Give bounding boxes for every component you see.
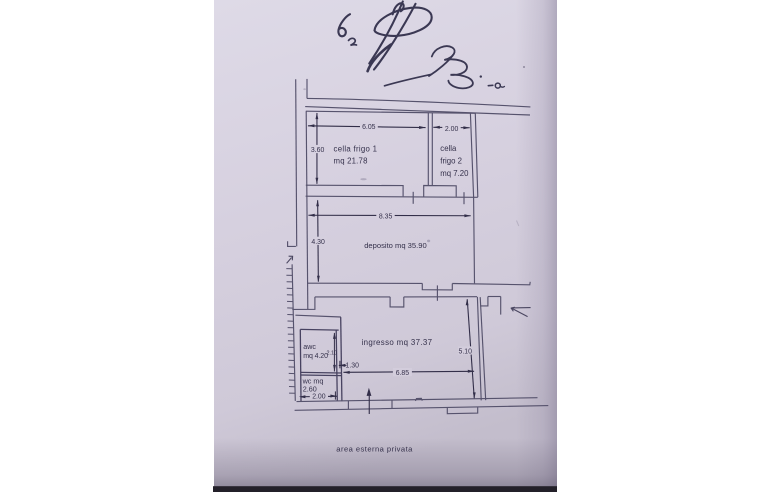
svg-text:awc: awc [303, 343, 316, 351]
svg-text:deposito mq 35.90: deposito mq 35.90 [364, 241, 426, 250]
svg-text:2.00: 2.00 [312, 393, 326, 400]
svg-text:2.00: 2.00 [445, 126, 459, 133]
svg-text:2.10: 2.10 [327, 351, 338, 357]
svg-text:5.10: 5.10 [458, 349, 472, 356]
svg-text:1.30: 1.30 [345, 362, 359, 369]
svg-text:mq 4.20: mq 4.20 [303, 353, 328, 360]
svg-text:cella: cella [440, 144, 457, 153]
svg-text:area esterna privata: area esterna privata [336, 445, 413, 454]
svg-text:8.35: 8.35 [379, 213, 393, 220]
svg-text:6.05: 6.05 [362, 124, 376, 131]
svg-text:mq 21.78: mq 21.78 [334, 156, 368, 165]
svg-text:cella frigo 1: cella frigo 1 [334, 144, 378, 153]
svg-text:ingresso mq 37.37: ingresso mq 37.37 [362, 338, 433, 347]
svg-text:4.30: 4.30 [311, 239, 325, 246]
svg-text:3.60: 3.60 [311, 147, 325, 154]
svg-text:frigo 2: frigo 2 [440, 156, 462, 165]
svg-text:mq 7.20: mq 7.20 [440, 169, 469, 178]
svg-text:6.85: 6.85 [396, 370, 410, 377]
svg-text:2.60: 2.60 [303, 385, 317, 394]
